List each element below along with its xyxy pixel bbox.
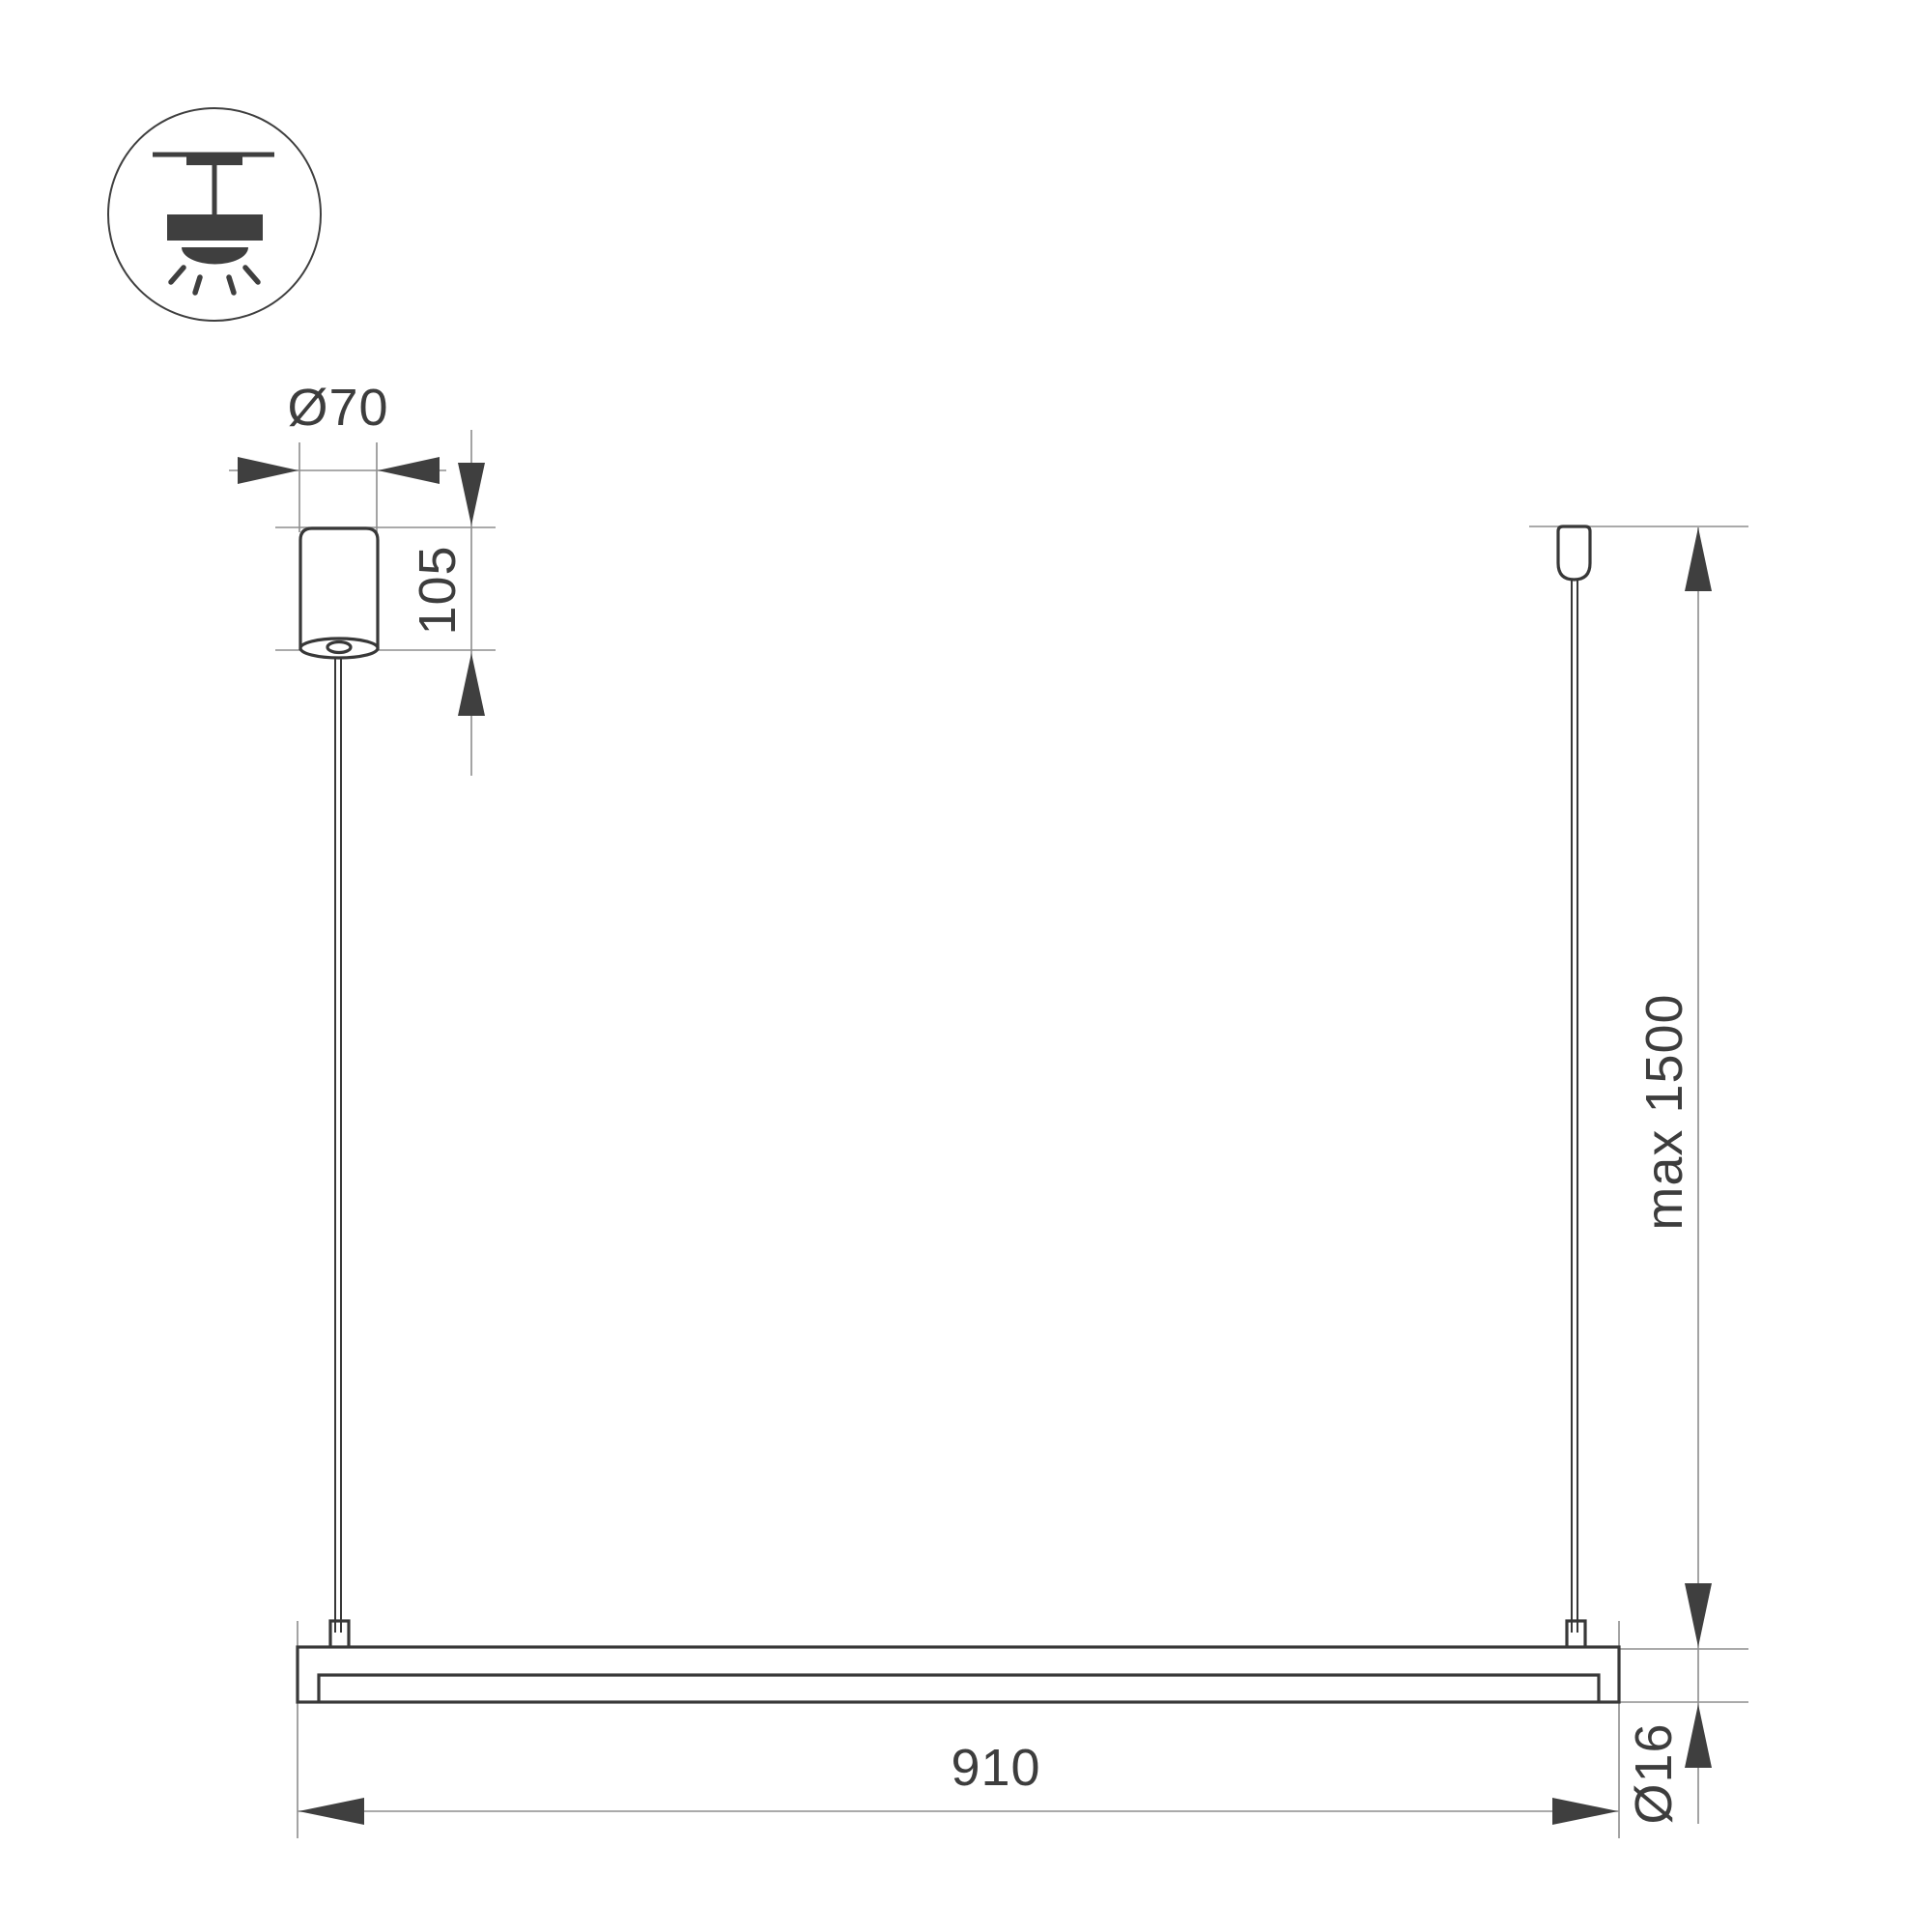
arrow-down-icon [1685, 1583, 1712, 1647]
drawing-page: Ø70 105 max 1500 910 Ø16 [0, 0, 1932, 1932]
dimension-arrows [238, 457, 1712, 1825]
right-ceiling-fitting [1558, 526, 1590, 580]
arrow-right-icon [1552, 1798, 1618, 1825]
arrow-left-icon [378, 457, 440, 484]
canopy-detail-view [300, 528, 378, 658]
arrow-up-icon [1685, 1704, 1712, 1768]
icon-lamp-dome [182, 247, 248, 265]
ceiling-fitting-body [1558, 526, 1590, 580]
icon-light-ray [171, 268, 184, 282]
icon-light-ray [195, 277, 200, 293]
max-suspension-label: max 1500 [1635, 993, 1693, 1230]
pendant-lamp-dimension-drawing: Ø70 105 max 1500 910 Ø16 [0, 0, 1932, 1932]
arrow-up-icon [458, 653, 485, 716]
fixture-length-label: 910 [951, 1739, 1040, 1797]
right-cable-grip [1567, 1621, 1585, 1649]
icon-light-ray [229, 277, 234, 293]
light-bar [298, 1621, 1619, 1702]
dimension-lines [229, 430, 1748, 1838]
canopy-height-label: 105 [409, 545, 467, 635]
canopy-cable-gland [327, 642, 351, 653]
left-cable-grip [330, 1621, 349, 1649]
dimension-labels: Ø70 105 max 1500 910 Ø16 [287, 379, 1693, 1825]
ceiling-pendant-light-icon [108, 108, 321, 321]
arrow-left-icon [298, 1798, 364, 1825]
canopy-diameter-label: Ø70 [287, 379, 388, 437]
arrow-right-icon [238, 457, 298, 484]
suspension-cables [335, 575, 1577, 1633]
fixture-diameter-label: Ø16 [1625, 1722, 1683, 1824]
arrow-down-icon [458, 463, 485, 526]
icon-light-ray [245, 268, 258, 282]
arrow-up-icon [1685, 527, 1712, 591]
icon-lamp-body [167, 214, 263, 241]
canopy-body-fill [300, 528, 378, 648]
